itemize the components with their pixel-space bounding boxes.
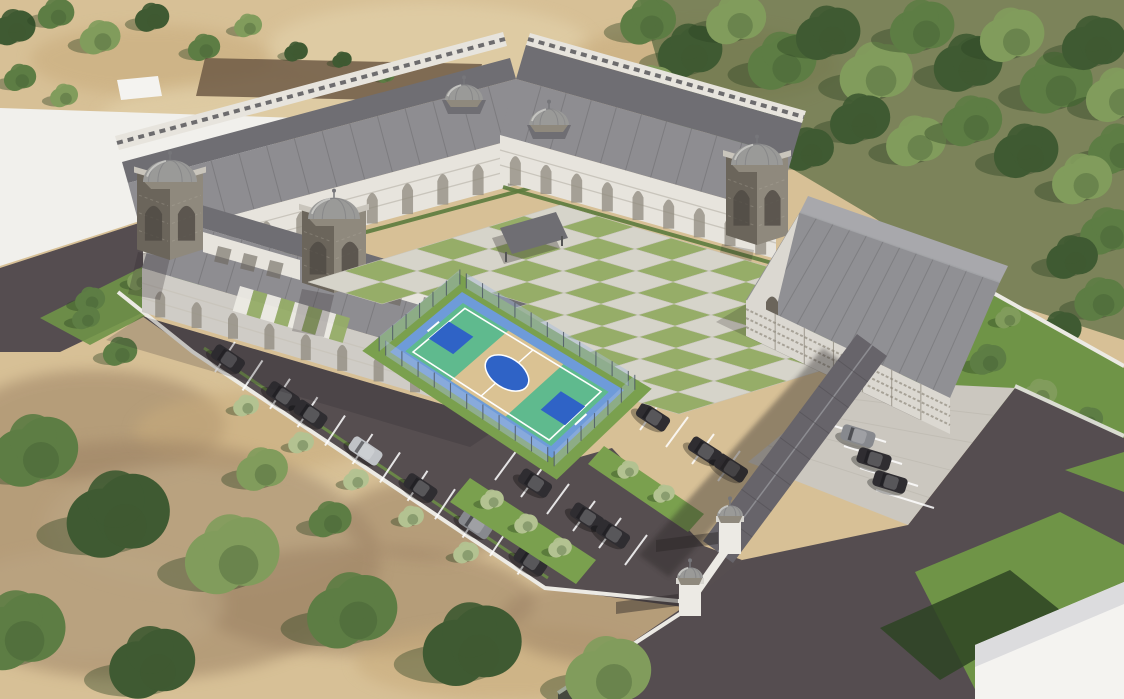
canopy-shade (1046, 76, 1077, 107)
canopy-shade (147, 14, 161, 28)
canopy-shade (458, 635, 499, 676)
tower-arch (764, 190, 780, 226)
arch (571, 174, 582, 203)
arch (541, 165, 552, 194)
canopy-shade (1017, 145, 1044, 172)
canopy-shade (339, 602, 377, 640)
dome-drum (732, 165, 781, 172)
dome-drum (530, 125, 568, 132)
canopy-shade (852, 113, 877, 138)
canopy-shade (23, 442, 59, 478)
canopy-shade (94, 33, 111, 50)
canopy-shade (801, 144, 823, 166)
canopy-shade (772, 54, 801, 83)
canopy-shade (983, 356, 998, 371)
arch (301, 334, 311, 360)
arch (264, 324, 274, 350)
canopy-shade (728, 13, 753, 38)
small-hut (117, 76, 162, 100)
canopy-shade (964, 115, 989, 140)
arch (663, 200, 674, 229)
tower-arch (145, 206, 162, 241)
tower-arch (178, 206, 195, 241)
dome-finial (462, 75, 466, 79)
pillar-body (719, 520, 741, 554)
dome-drum (678, 578, 703, 585)
canopy-shade (407, 514, 418, 525)
canopy-shade (640, 16, 663, 39)
canopy-shade (462, 550, 473, 561)
arch (633, 191, 644, 220)
canopy-shade (489, 497, 499, 507)
arch (402, 183, 413, 214)
canopy-shade (1004, 315, 1015, 326)
canopy-shade (681, 45, 708, 72)
arch (228, 313, 238, 339)
canopy-shade (596, 664, 632, 699)
arch (694, 208, 705, 237)
dome-drum (718, 516, 743, 523)
canopy-shade (60, 93, 72, 105)
canopy-shade (5, 621, 45, 661)
canopy-shade (255, 464, 277, 486)
dome-finial (688, 558, 692, 562)
canopy-shade (339, 58, 347, 66)
arch (473, 164, 484, 195)
canopy-shade (625, 468, 634, 477)
canopy-shade (200, 44, 214, 58)
aerial-render: Aerial 3D rendering of a school campus w… (0, 0, 1124, 699)
arch (437, 174, 448, 205)
arch (602, 182, 613, 211)
canopy-shade (140, 654, 176, 690)
arch (510, 156, 521, 185)
tower-arch (310, 242, 327, 275)
canopy-shade (523, 521, 533, 531)
canopy-shade (1085, 37, 1112, 64)
tower-arch (733, 190, 749, 226)
canopy-shade (1074, 173, 1099, 198)
dome-finial (755, 135, 759, 139)
arch (337, 345, 347, 371)
canopy-shade (244, 23, 256, 35)
canopy-shade (1065, 252, 1087, 274)
dome-finial (547, 100, 551, 104)
dome-drum (309, 219, 358, 226)
arch (192, 302, 202, 328)
canopy-shade (82, 315, 94, 327)
canopy-shade (1100, 226, 1123, 249)
canopy-shade (958, 56, 987, 85)
canopy-shade (16, 74, 30, 88)
canopy-shade (913, 21, 940, 48)
canopy-shade (104, 504, 147, 547)
canopy-shade (115, 348, 129, 362)
canopy-shade (1093, 294, 1115, 316)
canopy-shade (242, 403, 253, 414)
canopy-shade (51, 10, 66, 25)
canopy-shade (297, 440, 308, 451)
canopy-shade (219, 545, 259, 585)
canopy-shade (661, 492, 670, 501)
canopy-shade (8, 23, 26, 41)
dome-drum (144, 182, 195, 189)
pillar-body (679, 582, 701, 616)
dome-finial (168, 151, 172, 155)
render-root: Aerial 3D rendering of a school campus w… (0, 0, 1124, 699)
canopy-shade (557, 545, 567, 555)
canopy-shade (819, 27, 846, 54)
canopy-shade (293, 49, 303, 59)
canopy-shade (866, 66, 897, 97)
canopy-shade (352, 477, 363, 488)
dome-drum (446, 100, 482, 107)
dome-finial (728, 496, 732, 500)
dome-finial (332, 189, 336, 193)
canopy-shade (1003, 29, 1030, 56)
canopy-shade (324, 515, 342, 533)
